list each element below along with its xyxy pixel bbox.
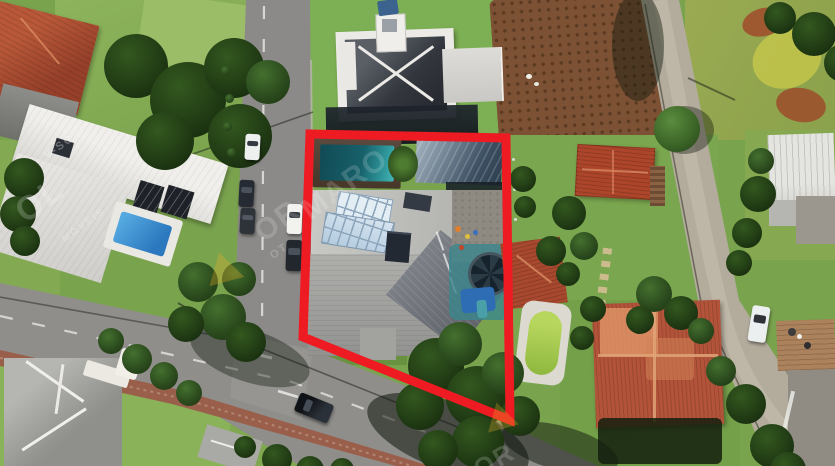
boundary-layer: [0, 0, 835, 466]
aerial-photo: OL V-SC MÓVEIS OR MARO OT OR: [0, 0, 835, 466]
